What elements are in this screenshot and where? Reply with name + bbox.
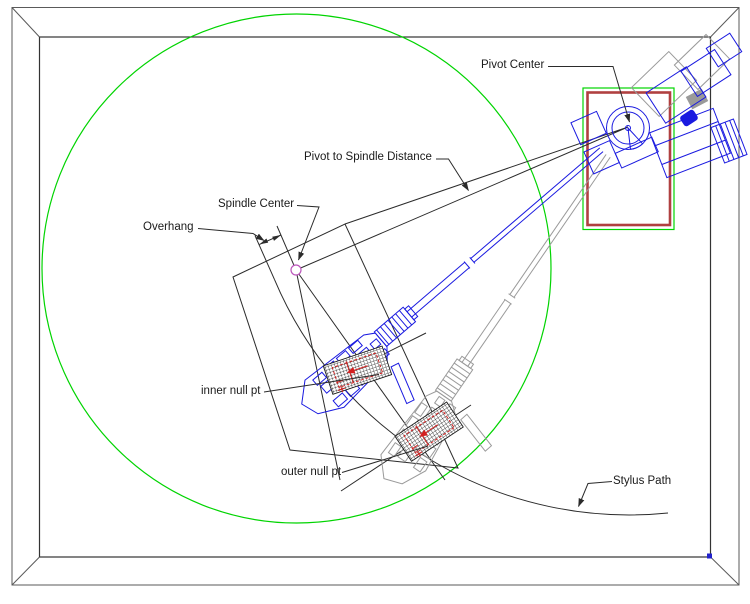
tonearm-main: [291, 136, 645, 457]
counterweight-ghost: [631, 34, 729, 116]
stylus-path-arc: [274, 279, 668, 515]
tonearm-alignment-diagram: Pivot Center Pivot to Spindle Distance S…: [0, 0, 750, 604]
label-spindle-center: Spindle Center: [218, 198, 294, 210]
label-pivot-to-spindle: Pivot to Spindle Distance: [304, 151, 432, 163]
sheet-border: [12, 8, 739, 586]
label-overhang: Overhang: [143, 221, 194, 233]
tonearm-ghost: [371, 146, 664, 519]
label-pivot-center: Pivot Center: [481, 59, 544, 71]
label-outer-null-pt: outer null pt: [281, 466, 341, 478]
pivot-assembly: [571, 95, 658, 179]
label-stylus-path: Stylus Path: [613, 475, 671, 487]
diagram-canvas: [0, 0, 750, 604]
spindle-marker: [291, 265, 301, 275]
armboard: [583, 88, 674, 230]
label-inner-null-pt: inner null pt: [201, 385, 260, 397]
corner-point-marker: [707, 554, 712, 559]
